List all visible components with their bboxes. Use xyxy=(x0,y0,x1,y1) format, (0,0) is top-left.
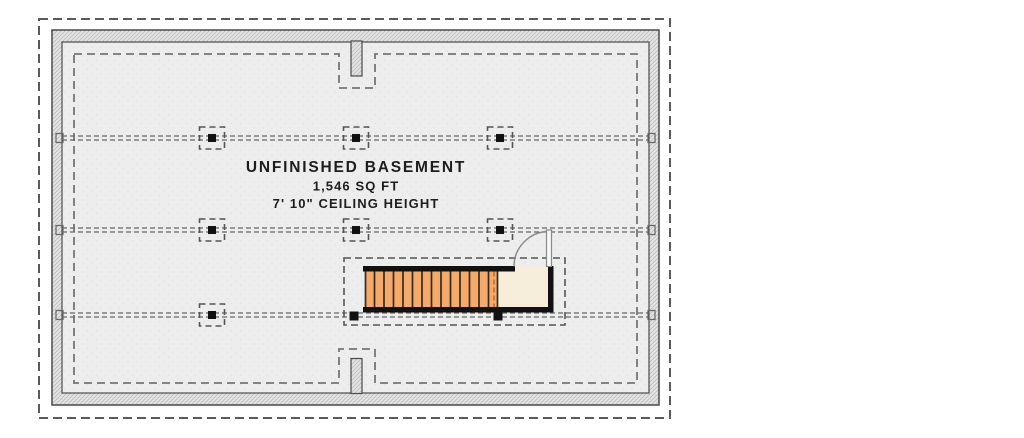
column-post xyxy=(208,311,216,319)
basement-floor xyxy=(62,42,649,393)
floor-plan: UNFINISHED BASEMENT 1,546 SQ FT 7' 10" C… xyxy=(0,0,1024,438)
wall-stub-bottom xyxy=(351,359,362,394)
column-post xyxy=(208,226,216,234)
column-post xyxy=(352,134,360,142)
room-area-label: 1,546 SQ FT xyxy=(313,179,400,194)
wall-stub-top xyxy=(351,41,362,76)
room-title: UNFINISHED BASEMENT xyxy=(246,159,466,176)
column-post xyxy=(496,226,504,234)
door-leaf xyxy=(547,230,552,267)
column-post xyxy=(350,312,359,321)
column-post xyxy=(208,134,216,142)
staircase xyxy=(350,266,554,321)
column-post xyxy=(352,226,360,234)
floor-plan-page: UNFINISHED BASEMENT 1,546 SQ FT 7' 10" C… xyxy=(0,0,1024,438)
column-post xyxy=(494,312,503,321)
stair-landing xyxy=(497,267,548,308)
column-post xyxy=(496,134,504,142)
ceiling-height-label: 7' 10" CEILING HEIGHT xyxy=(273,196,440,211)
